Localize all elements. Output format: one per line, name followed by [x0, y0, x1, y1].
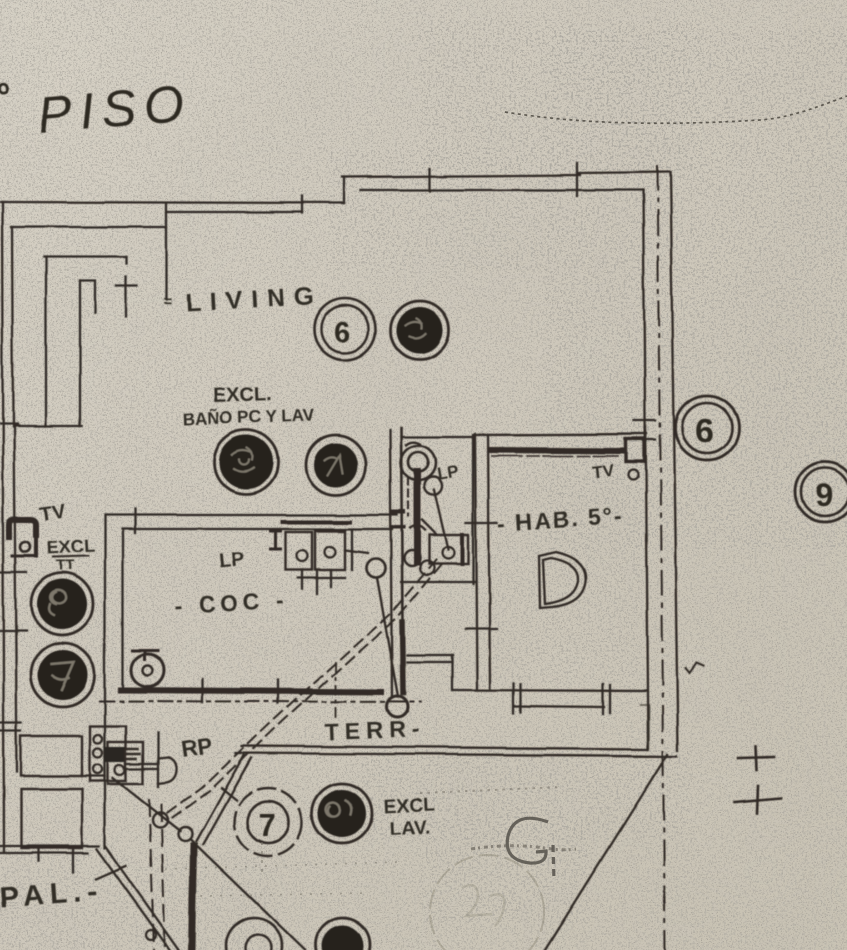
svg-text:LAV.: LAV. [389, 817, 430, 840]
svg-text:TERR-: TERR- [324, 716, 425, 745]
svg-text:RP: RP [179, 733, 214, 763]
svg-text:TT: TT [56, 557, 74, 574]
svg-text:LP: LP [435, 461, 460, 483]
svg-text:7: 7 [258, 807, 276, 843]
svg-text:EXCL: EXCL [383, 794, 435, 818]
svg-text:TV: TV [39, 501, 68, 526]
svg-text:EXCL.: EXCL. [212, 383, 272, 407]
svg-text:=: = [163, 293, 172, 310]
svg-text:EXCL: EXCL [46, 536, 95, 558]
svg-text:6: 6 [334, 316, 351, 349]
svg-text:TV: TV [591, 461, 615, 482]
svg-text:LP: LP [218, 548, 246, 573]
svg-text:°: ° [0, 75, 10, 116]
svg-text:9: 9 [815, 477, 833, 513]
svg-text:6: 6 [695, 412, 714, 450]
